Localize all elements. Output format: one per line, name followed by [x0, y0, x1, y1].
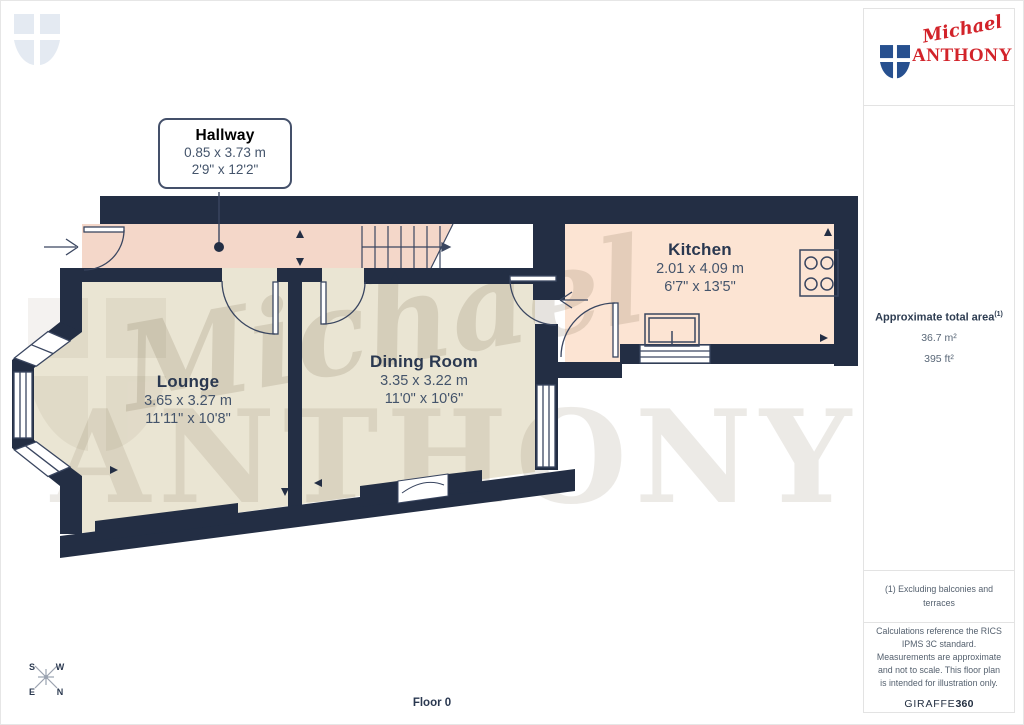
corner-shield-watermark-icon — [14, 14, 60, 65]
footnote-box: (1) Excluding balconies and terraces — [863, 570, 1015, 623]
agency-logo-box: Michael ANTHONY — [863, 8, 1015, 106]
lounge-label: Lounge 3.65 x 3.27 m 11'11" x 10'8" — [103, 372, 273, 428]
area-title-sup: (1) — [994, 311, 1003, 318]
kitchen-name: Kitchen — [615, 240, 785, 260]
floor-label: Floor 0 — [380, 697, 484, 709]
dining-window — [537, 385, 555, 467]
compass-n: N — [57, 687, 64, 697]
area-imperial: 395 ft² — [864, 353, 1014, 365]
compass-w: W — [56, 662, 65, 672]
compass-icon: S W E N — [29, 662, 65, 697]
disclaimer-text: Calculations reference the RICS IPMS 3C … — [874, 625, 1004, 691]
lounge-imperial: 11'11" x 10'8" — [103, 410, 273, 428]
provider-name: GIRAFFE — [904, 698, 955, 710]
area-title-text: Approximate total area — [875, 311, 994, 323]
area-metric: 36.7 m² — [864, 332, 1014, 344]
agency-logo-script: Michael — [921, 11, 1004, 47]
area-title: Approximate total area(1) — [864, 311, 1014, 324]
dining-name: Dining Room — [334, 352, 514, 372]
kitchen-label: Kitchen 2.01 x 4.09 m 6'7" x 13'5" — [615, 240, 785, 296]
lounge-metric: 3.65 x 3.27 m — [103, 392, 273, 410]
footnote-text: (1) Excluding balconies and terraces — [874, 583, 1004, 609]
kitchen-metric: 2.01 x 4.09 m — [615, 260, 785, 278]
kitchen-imperial: 6'7" x 13'5" — [615, 278, 785, 296]
hallway-name: Hallway — [164, 127, 286, 145]
disclaimer-box: Calculations reference the RICS IPMS 3C … — [863, 622, 1015, 713]
provider-suffix: 360 — [955, 698, 973, 710]
hallway-imperial: 2'9" x 12'2" — [164, 162, 286, 179]
entry-arrow-icon — [44, 239, 78, 255]
agency-shield-icon — [880, 45, 910, 79]
provider-logo: GIRAFFE360 — [904, 698, 973, 710]
agency-logo-name: ANTHONY — [912, 45, 1013, 67]
lounge-name: Lounge — [103, 372, 273, 392]
kitchen-window — [640, 345, 710, 363]
hallway-metric: 0.85 x 3.73 m — [164, 145, 286, 162]
hallway-callout: Hallway 0.85 x 3.73 m 2'9" x 12'2" — [158, 118, 292, 189]
dining-imperial: 11'0" x 10'6" — [334, 390, 514, 408]
compass-s: S — [29, 662, 35, 672]
dining-label: Dining Room 3.35 x 3.22 m 11'0" x 10'6" — [334, 352, 514, 408]
dining-metric: 3.35 x 3.22 m — [334, 372, 514, 390]
total-area-box: Approximate total area(1) 36.7 m² 395 ft… — [863, 105, 1015, 571]
fireplace-right-block — [448, 470, 482, 495]
compass-e: E — [29, 687, 35, 697]
